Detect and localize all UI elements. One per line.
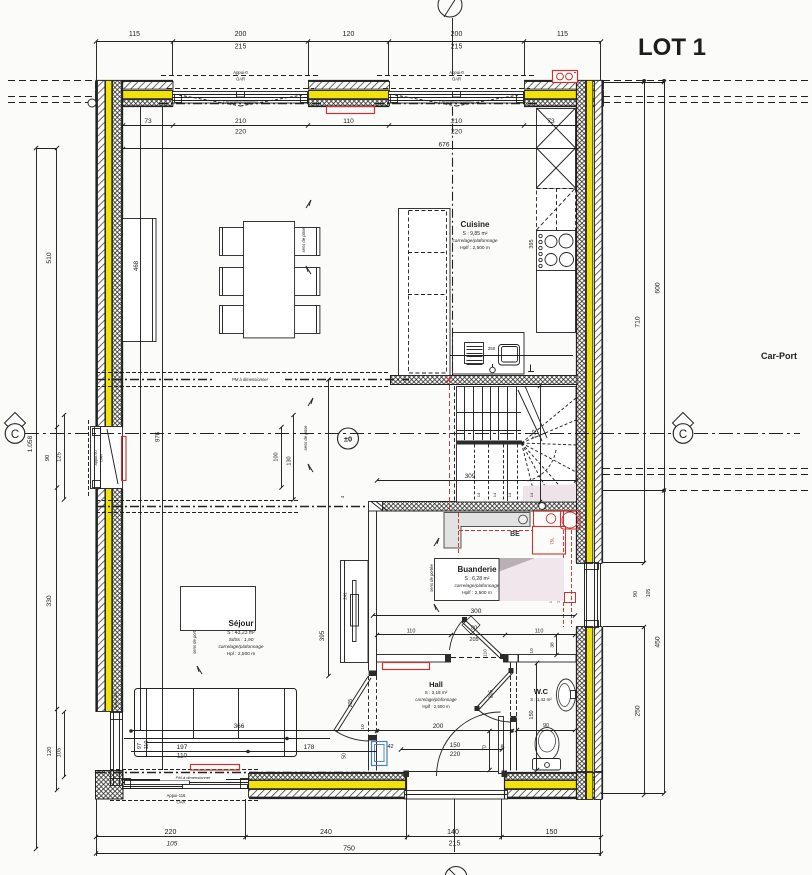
svg-text:OAR: OAR [100,454,104,462]
svg-text:510: 510 [46,252,53,264]
svg-text:110: 110 [343,118,354,125]
svg-text:70: 70 [482,745,488,751]
svg-text:105: 105 [646,589,652,598]
svg-text:PM-à-dimensionner: PM-à-dimensionner [439,98,475,103]
svg-text:Cuisine: Cuisine [461,220,490,229]
svg-text:80: 80 [471,626,477,632]
svg-text:14: 14 [492,492,497,497]
svg-text:Buanderie: Buanderie [457,565,497,574]
svg-text:73: 73 [547,118,555,125]
svg-text:90: 90 [45,455,51,461]
svg-text:90: 90 [543,723,549,729]
svg-text:240: 240 [320,829,332,836]
svg-text:73: 73 [144,118,152,125]
svg-text:172: 172 [532,429,538,438]
svg-text:50: 50 [342,753,348,759]
svg-text:PM-à dimensionner: PM-à dimensionner [176,775,211,780]
svg-text:220: 220 [235,129,246,136]
svg-text:205: 205 [469,637,478,643]
svg-text:LOT 1: LOT 1 [638,34,706,61]
svg-text:Appui-116: Appui-116 [167,793,186,798]
svg-text:sens de pose: sens de pose [301,227,306,253]
svg-text:210: 210 [235,118,246,125]
svg-text:150: 150 [450,742,461,749]
svg-text:C: C [679,429,687,441]
svg-text:S : 43,23 m²: S : 43,23 m² [227,630,255,636]
svg-text:1.058: 1.058 [27,435,34,452]
svg-text:676: 676 [438,142,449,149]
svg-text:241: 241 [343,592,348,600]
svg-text:110: 110 [535,629,544,635]
svg-text:OAR: OAR [176,800,185,805]
svg-text:14: 14 [529,492,534,497]
svg-text:38: 38 [550,642,556,648]
svg-text:120: 120 [343,31,355,38]
svg-text:C: C [11,429,19,441]
svg-text:S : 3,18 m²: S : 3,18 m² [425,690,448,695]
svg-text:S : 9,85 m²: S : 9,85 m² [463,231,488,237]
svg-text:600: 600 [655,282,662,294]
svg-text:14: 14 [507,492,512,497]
svg-text:250: 250 [488,346,496,351]
svg-text:309: 309 [465,473,476,480]
svg-text:105: 105 [167,841,178,848]
svg-text:150: 150 [529,710,535,719]
svg-text:Hplf : 2,500 m: Hplf : 2,500 m [460,245,490,251]
svg-text:120: 120 [47,747,53,757]
svg-text:90: 90 [633,591,639,597]
svg-text:110: 110 [407,629,416,635]
svg-text:110: 110 [483,649,489,657]
svg-text:220: 220 [451,129,462,136]
svg-text:Appui-0: Appui-0 [449,70,464,75]
svg-text:200: 200 [235,31,247,38]
svg-text:Appui-0: Appui-0 [233,70,248,75]
svg-text:110: 110 [144,741,150,750]
svg-text:Hplf : 2,500 m: Hplf : 2,500 m [462,590,492,596]
svg-text:Hpl : 2,500 m: Hpl : 2,500 m [227,651,256,657]
svg-text:OAR: OAR [236,77,245,82]
svg-text:150: 150 [546,829,558,836]
svg-text:100: 100 [274,452,280,461]
svg-text:OAR: OAR [452,77,461,82]
svg-text:205: 205 [489,690,495,699]
svg-text:S : 1,42 m²: S : 1,42 m² [530,697,552,702]
svg-text:200: 200 [433,723,444,730]
svg-text:976: 976 [156,431,162,442]
svg-text:395: 395 [319,630,326,641]
svg-text:±0: ±0 [344,435,352,444]
svg-text:PM à dimensionner: PM à dimensionner [232,377,269,382]
svg-text:210: 210 [451,118,462,125]
svg-text:750: 750 [343,846,355,853]
svg-text:sens de portée: sens de portée [429,563,434,591]
svg-text:Hplf : 2,500 m: Hplf : 2,500 m [422,704,450,709]
svg-text:130: 130 [287,456,293,465]
svg-text:140: 140 [447,829,459,836]
svg-text:450: 450 [655,636,662,648]
svg-text:PM-à-dimensionner: PM-à-dimensionner [223,98,259,103]
svg-text:468: 468 [134,260,140,271]
svg-text:75L: 75L [550,537,555,545]
svg-text:220: 220 [450,751,461,758]
svg-text:carrelage/plafonnage: carrelage/plafonnage [452,238,497,244]
svg-text:Car-Port: Car-Port [761,351,797,361]
svg-text:115: 115 [557,31,568,38]
svg-text:220: 220 [165,829,177,836]
svg-text:SdSs : 1,90: SdSs : 1,90 [229,637,254,643]
svg-text:710: 710 [635,316,642,328]
svg-text:395: 395 [529,239,535,248]
svg-text:sens de pose: sens de pose [303,425,308,451]
svg-text:42: 42 [387,744,393,750]
svg-text:10: 10 [529,648,535,654]
svg-text:215: 215 [235,44,247,51]
svg-text:BE: BE [510,531,520,538]
svg-text:Séjour: Séjour [229,619,254,628]
svg-text:10: 10 [360,724,366,730]
svg-text:97: 97 [137,743,143,749]
svg-text:250: 250 [635,705,642,717]
svg-text:125: 125 [57,452,63,462]
svg-text:300: 300 [471,608,482,615]
svg-text:Appui-116: Appui-116 [114,692,118,708]
svg-text:14: 14 [476,492,481,497]
svg-text:S : 6,28 m²: S : 6,28 m² [465,576,490,582]
svg-text:carrelage/plafonnage: carrelage/plafonnage [415,697,457,702]
svg-text:110: 110 [177,753,188,760]
svg-text:Appui-90: Appui-90 [94,450,98,465]
svg-text:8: 8 [501,745,504,751]
svg-text:366: 366 [234,723,245,730]
svg-text:105: 105 [57,747,63,757]
svg-text:carrelage/plafonnage: carrelage/plafonnage [218,644,263,650]
svg-text:carrelage/plafonnage: carrelage/plafonnage [454,583,499,589]
svg-text:330: 330 [46,595,53,607]
svg-text:178: 178 [304,744,315,751]
svg-text:Hall: Hall [429,680,443,689]
svg-text:205: 205 [348,699,354,708]
svg-text:115: 115 [129,31,140,38]
svg-text:197: 197 [177,744,188,751]
